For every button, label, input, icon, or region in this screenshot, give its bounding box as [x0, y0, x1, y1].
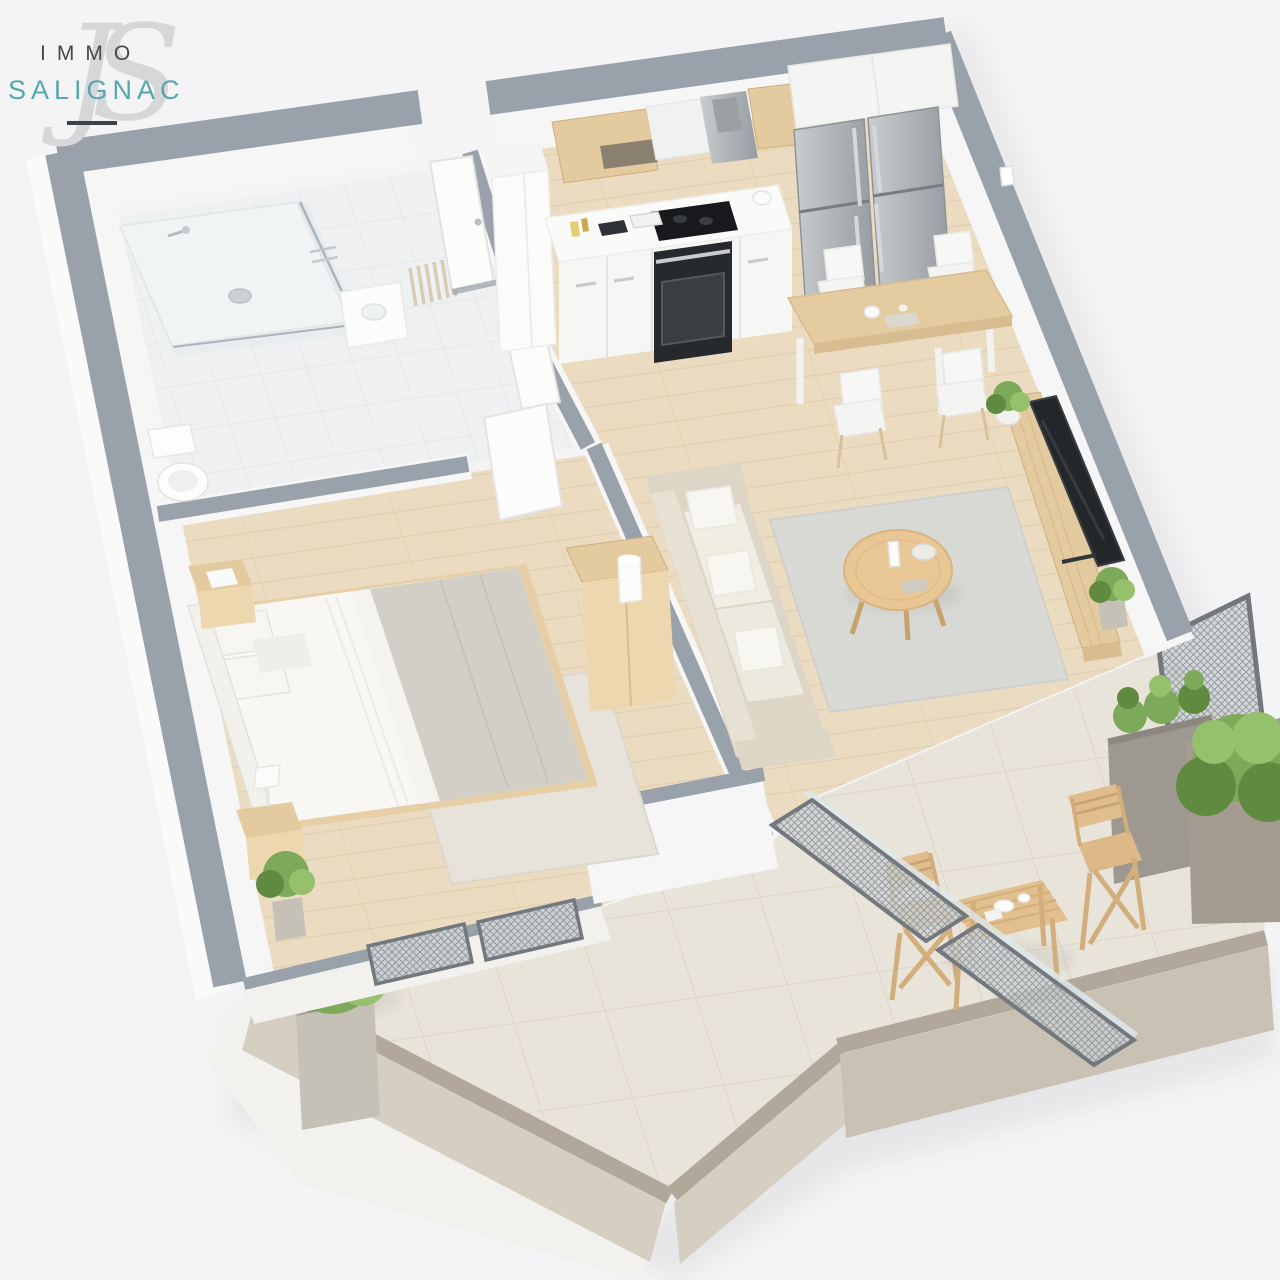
- floor-plan-render: JS IMMO SALIGNAC: [0, 0, 1280, 1280]
- kettle: [753, 191, 771, 205]
- sideboard-lamp: [618, 557, 642, 603]
- oven: [654, 241, 732, 363]
- teapot: [864, 306, 880, 318]
- glass-bowl: [912, 544, 936, 560]
- brand-underline: [67, 121, 117, 125]
- planter-box-far-right: [1176, 712, 1280, 924]
- thermostat: [1000, 166, 1014, 186]
- table-lamp: [254, 765, 280, 789]
- brand-name-line1: IMMO: [40, 42, 248, 66]
- brand-logo: JS IMMO SALIGNAC: [8, 42, 248, 202]
- brand-name-line2: SALIGNAC: [8, 75, 248, 106]
- sofa-pillow: [734, 626, 784, 672]
- upper-cabinet-white: [646, 99, 710, 160]
- teacup: [1018, 894, 1030, 903]
- sofa-pillow: [686, 486, 738, 530]
- vanity: [340, 282, 408, 348]
- sofa-pillow: [706, 550, 756, 596]
- carafe: [888, 541, 900, 567]
- floor-drain: [229, 289, 251, 303]
- door-handle: [475, 219, 482, 226]
